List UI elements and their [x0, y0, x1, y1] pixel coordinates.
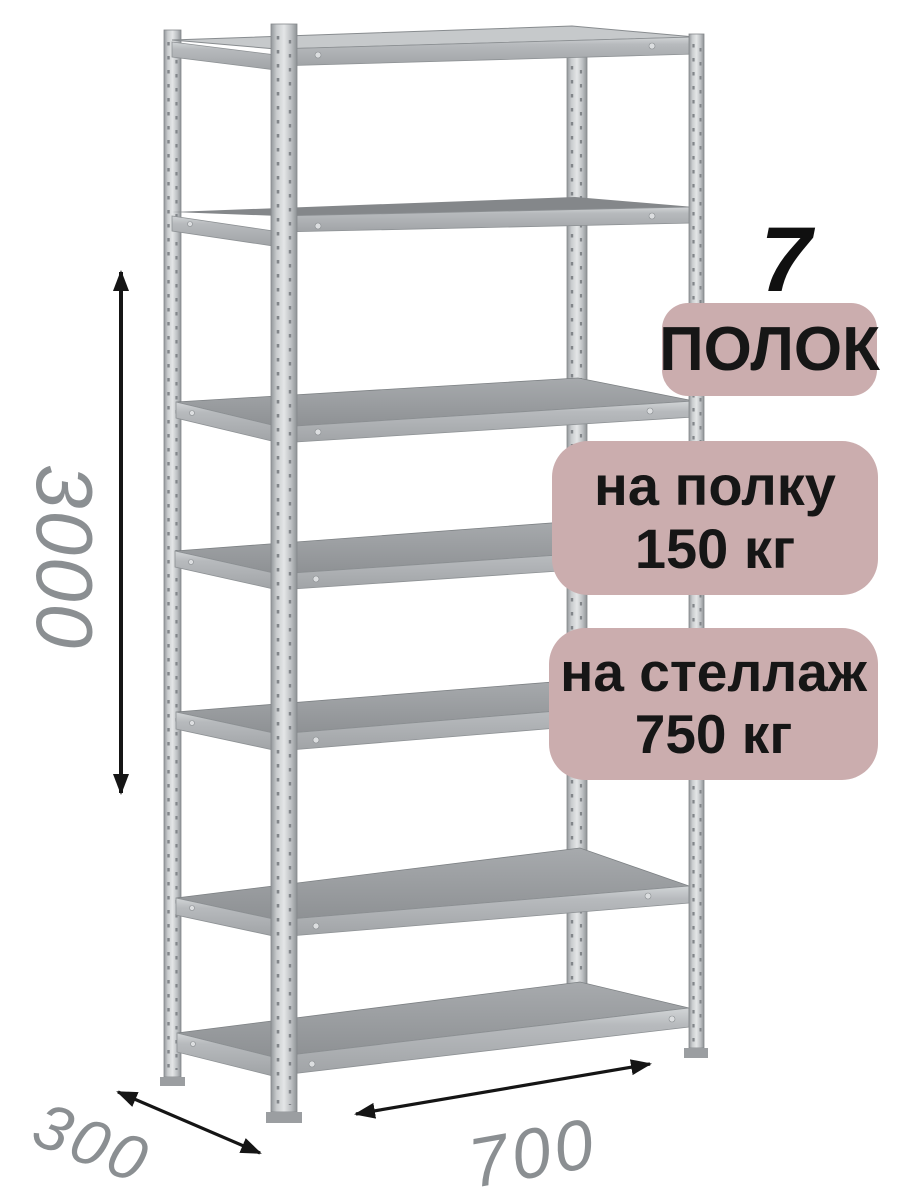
- per-rack-load-badge: на стеллаж 750 кг: [549, 628, 878, 780]
- shelf-6: [176, 848, 689, 937]
- product-image: 7 ПОЛОК на полку 150 кг на стеллаж 750 к…: [0, 0, 900, 1200]
- width-dimension-arrow: [356, 1064, 650, 1114]
- shelf-2: [172, 197, 694, 247]
- shelf-3: [176, 378, 694, 443]
- shelf-count-unit-label: ПОЛОК: [659, 319, 880, 381]
- per-shelf-load-line1: на полку: [594, 455, 836, 518]
- per-shelf-load-line2: 150 кг: [635, 518, 795, 581]
- per-rack-load-line2: 750 кг: [635, 704, 792, 766]
- shelf-count-badge: ПОЛОК: [662, 303, 877, 396]
- per-rack-load-line1: на стеллаж: [560, 642, 867, 704]
- shelf-count: 7: [738, 214, 834, 304]
- shelf-1: [172, 26, 695, 70]
- per-shelf-load-badge: на полку 150 кг: [552, 441, 878, 595]
- shelf-7: [177, 982, 689, 1076]
- rack-illustration: [0, 0, 900, 1200]
- height-dimension-label: 3000: [24, 464, 104, 650]
- rack-post-front-left: [266, 24, 302, 1123]
